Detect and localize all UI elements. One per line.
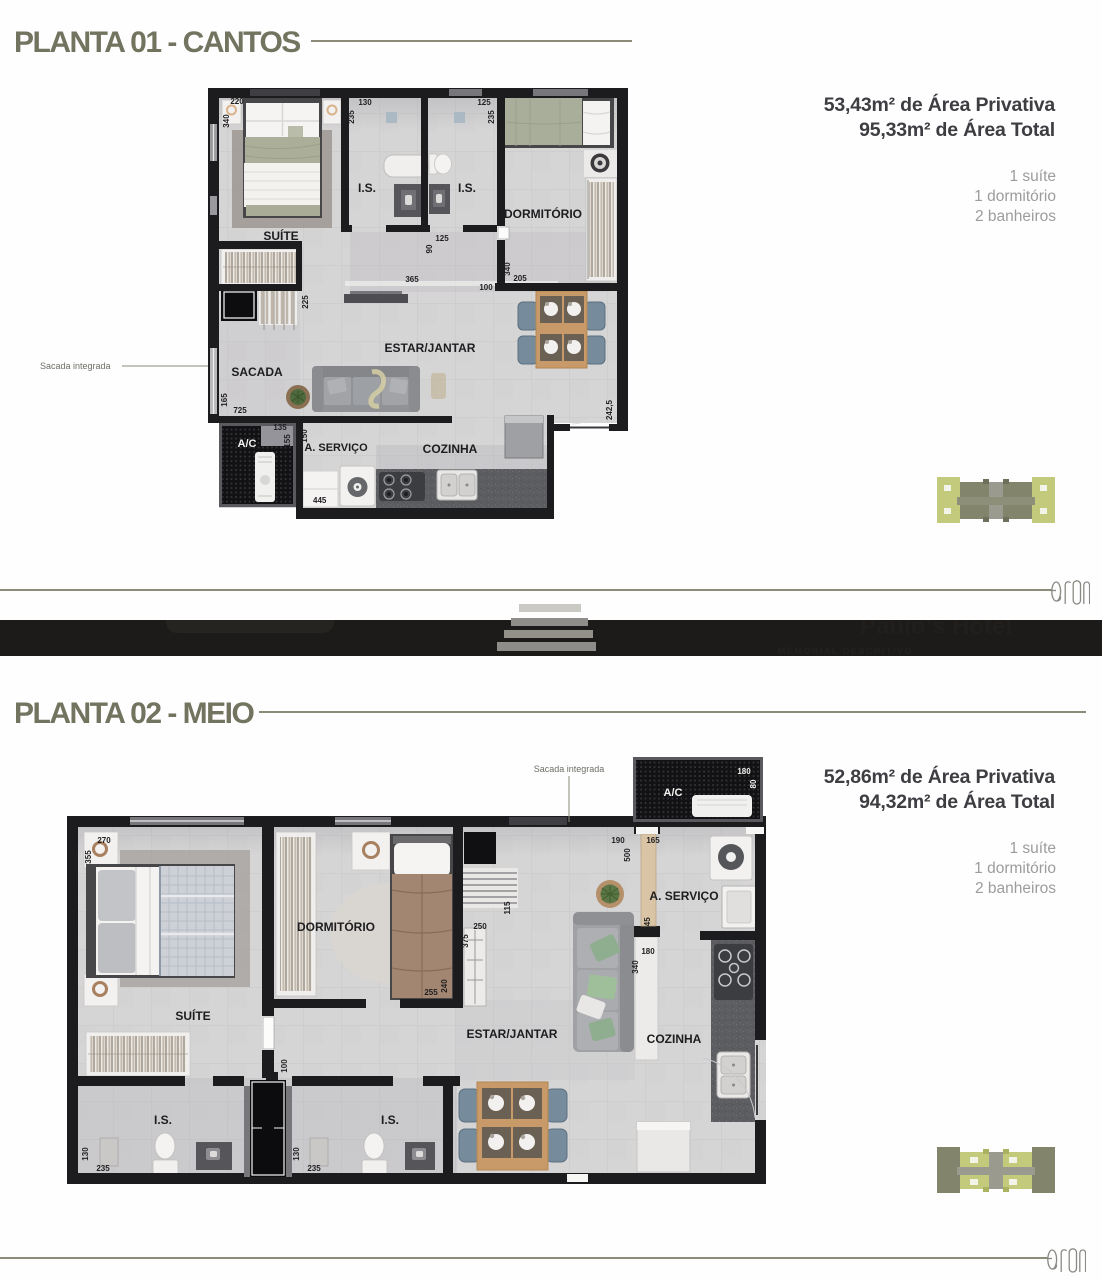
svg-text:255: 255 (424, 988, 438, 997)
svg-text:500: 500 (623, 848, 632, 862)
svg-text:SUÍTE: SUÍTE (175, 1008, 210, 1023)
svg-text:DORMITÓRIO: DORMITÓRIO (504, 206, 582, 221)
svg-text:I.S.: I.S. (381, 1113, 399, 1127)
svg-text:A. SERVIÇO: A. SERVIÇO (649, 889, 718, 903)
svg-text:135: 135 (273, 423, 287, 432)
svg-text:725: 725 (233, 406, 247, 415)
svg-text:115: 115 (503, 901, 512, 914)
svg-text:90: 90 (425, 244, 434, 253)
svg-text:I.S.: I.S. (458, 181, 476, 195)
svg-text:340: 340 (631, 960, 640, 974)
svg-text:180: 180 (737, 767, 751, 776)
svg-text:235: 235 (307, 1164, 321, 1173)
svg-text:I.S.: I.S. (154, 1113, 172, 1127)
svg-text:80: 80 (749, 779, 758, 788)
svg-text:270: 270 (97, 836, 111, 845)
svg-text:242,5: 242,5 (605, 399, 614, 420)
svg-text:205: 205 (513, 274, 527, 283)
svg-text:235: 235 (96, 1164, 110, 1173)
svg-text:340: 340 (503, 262, 512, 276)
svg-text:220: 220 (230, 97, 244, 106)
svg-text:180: 180 (641, 947, 655, 956)
svg-text:A. SERVIÇO: A. SERVIÇO (304, 442, 368, 454)
svg-text:DORMITÓRIO: DORMITÓRIO (297, 919, 375, 934)
svg-text:ESTAR/JANTAR: ESTAR/JANTAR (385, 341, 476, 355)
svg-text:A/C: A/C (664, 787, 683, 799)
svg-text:235: 235 (487, 110, 496, 124)
svg-text:125: 125 (477, 98, 491, 107)
svg-text:I.S.: I.S. (358, 181, 376, 195)
svg-text:355: 355 (84, 850, 93, 864)
svg-text:130: 130 (81, 1147, 90, 1161)
svg-text:225: 225 (301, 295, 310, 309)
svg-text:ESTAR/JANTAR: ESTAR/JANTAR (467, 1027, 558, 1041)
svg-text:COZINHA: COZINHA (647, 1032, 702, 1046)
svg-text:150: 150 (300, 429, 309, 443)
svg-text:A/C: A/C (238, 438, 257, 450)
svg-text:190: 190 (611, 836, 625, 845)
svg-text:235: 235 (347, 110, 356, 124)
svg-text:165: 165 (646, 836, 660, 845)
svg-text:130: 130 (358, 98, 372, 107)
svg-text:165: 165 (220, 393, 229, 407)
svg-text:365: 365 (405, 275, 419, 284)
svg-text:COZINHA: COZINHA (423, 442, 478, 456)
svg-text:250: 250 (473, 922, 487, 931)
svg-text:375: 375 (461, 934, 470, 948)
svg-text:Sacada integrada: Sacada integrada (40, 361, 111, 371)
svg-text:100: 100 (280, 1059, 289, 1073)
svg-text:125: 125 (435, 234, 449, 243)
svg-text:240: 240 (440, 979, 449, 993)
svg-text:445: 445 (313, 496, 327, 505)
svg-text:145: 145 (643, 917, 652, 931)
svg-text:130: 130 (292, 1147, 301, 1161)
svg-text:100: 100 (479, 283, 493, 292)
svg-text:155: 155 (283, 434, 292, 448)
svg-text:SACADA: SACADA (231, 365, 283, 379)
svg-text:340: 340 (222, 114, 231, 128)
svg-text:Sacada integrada: Sacada integrada (534, 764, 605, 774)
svg-text:SUÍTE: SUÍTE (263, 228, 298, 243)
